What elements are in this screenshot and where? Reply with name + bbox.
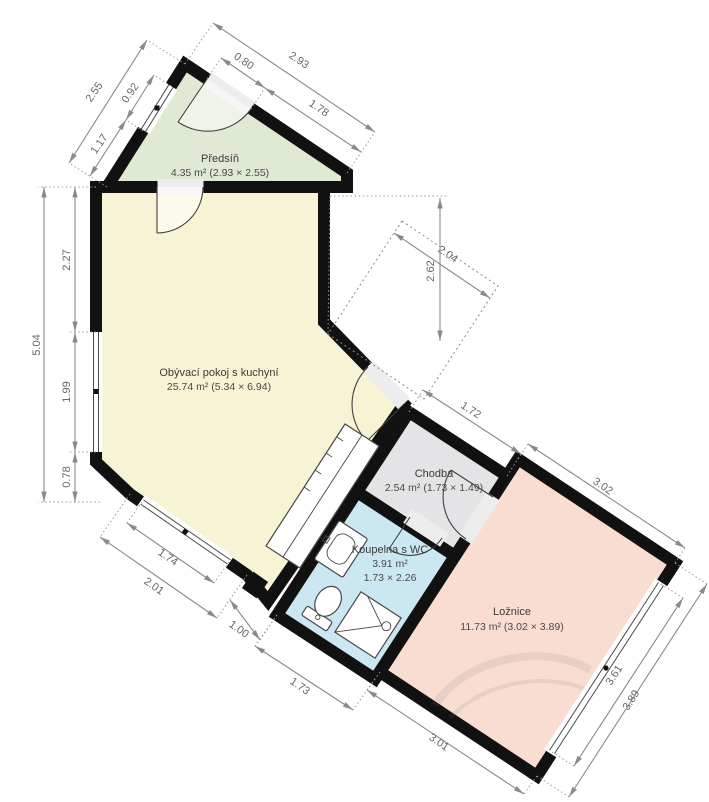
dim-hall-top: 2.93 (286, 50, 310, 72)
dim-bath-bottom: 1.73 (288, 675, 312, 697)
dim-sw-window: 1.74 (156, 546, 180, 568)
label-chodba-area: 2.54 m² (1.73 × 1.49) (385, 482, 483, 494)
dim-sw-wall: 2.01 (142, 575, 166, 597)
dim-court-w: 2.04 (435, 244, 459, 266)
dim-left-lower: 0.78 (61, 466, 73, 487)
label-bathroom-name: Koupelna s WC (352, 544, 428, 556)
label-bathroom-area: 3.91 m² (372, 558, 408, 570)
dim-bottom-step: 1.00 (227, 618, 251, 640)
floor-plan-page: 5.04 2.27 1.99 0.78 2.55 0.92 1.17 2.93 … (0, 0, 709, 802)
dim-left-upper: 2.27 (61, 249, 73, 270)
label-bedroom-name: Ložnice (493, 606, 531, 618)
dim-hall-top-right: 1.78 (306, 98, 330, 120)
label-bedroom-area: 11.73 m² (3.02 × 3.89) (460, 621, 563, 633)
label-hall-name: Předsíň (201, 153, 239, 165)
dim-hall-left: 2.55 (83, 80, 105, 104)
label-hall-area: 4.35 m² (2.93 × 2.55) (171, 167, 269, 179)
dim-bedroom-top: 3.02 (590, 476, 614, 498)
label-bathroom-dims: 1.73 × 2.26 (364, 572, 417, 584)
label-living-name: Obývací pokoj s kuchyní (159, 367, 278, 379)
dim-hall-window: 0.92 (119, 81, 141, 105)
floor-plan: 5.04 2.27 1.99 0.78 2.55 0.92 1.17 2.93 … (0, 0, 709, 802)
dim-left-total: 5.04 (31, 334, 43, 355)
label-living-area: 25.74 m² (5.34 × 6.94) (167, 381, 271, 393)
dim-hall-left-lower: 1.17 (88, 132, 110, 156)
dim-bedroom-bottom: 3.01 (427, 731, 451, 753)
living-left-window (90, 332, 103, 452)
dim-hall-door: 0.80 (231, 51, 255, 73)
dim-chodba-top: 1.72 (458, 400, 483, 422)
dim-bedroom-right: 3.89 (621, 688, 643, 713)
label-chodba-name: Chodba (415, 468, 454, 480)
dim-court-h: 2.62 (425, 260, 437, 281)
dim-left-window: 1.99 (61, 381, 73, 402)
